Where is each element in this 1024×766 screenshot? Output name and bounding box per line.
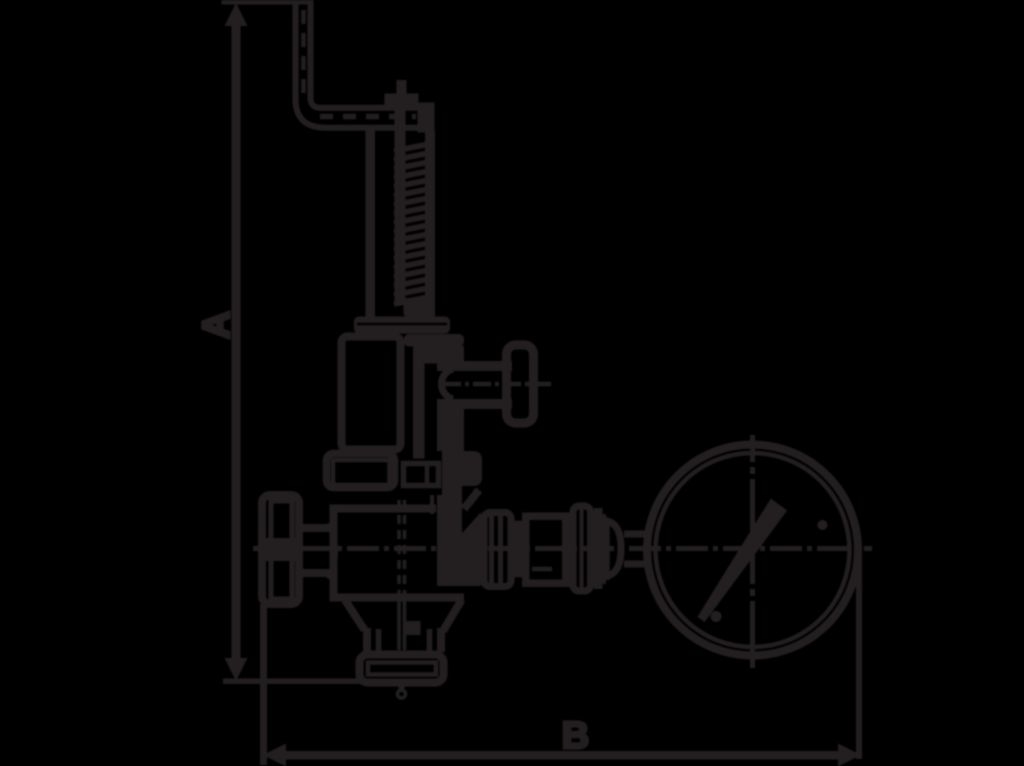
svg-text:A: A xyxy=(196,311,238,338)
svg-text:B: B xyxy=(562,715,589,757)
